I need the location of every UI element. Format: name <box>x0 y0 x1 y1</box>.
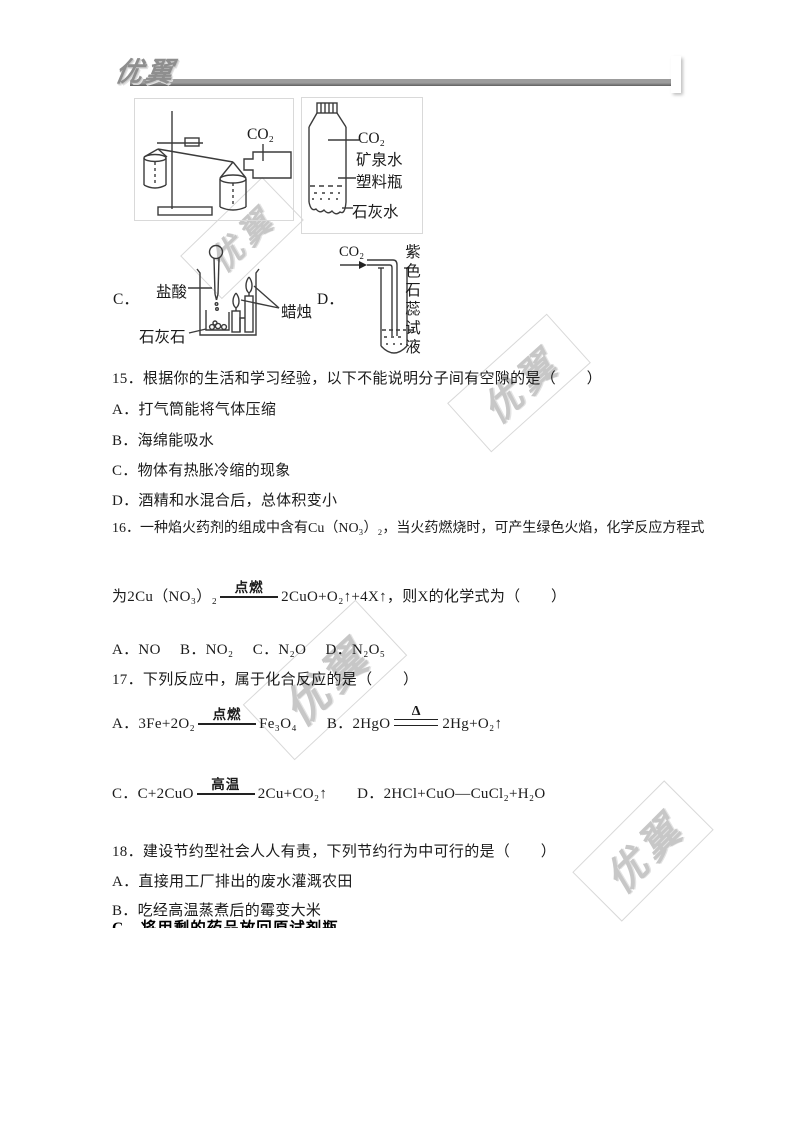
option-d-marker: D． <box>317 287 344 309</box>
watermark-stamp: 优翼 <box>572 780 713 921</box>
q17-options-ab: A．3Fe+2O₂点燃Fe₃O₄B．2HgOΔ2Hg+O₂↑ <box>112 712 502 733</box>
balance-apparatus-icon <box>135 99 293 220</box>
brand-logo: 优翼 <box>113 50 180 89</box>
q17-option-b-left: B．2HgO <box>327 716 390 732</box>
q17-option-d: D．2HCl+CuO—CuCl₂+H₂O <box>357 786 545 802</box>
q15-option-d: D．酒精和水混合后，总体积变小 <box>112 489 337 510</box>
option-c-marker: C． <box>113 287 139 309</box>
diagram-d-co2-label: CO₂ <box>339 244 364 261</box>
q17-option-a-right: Fe₃O₄ <box>259 716 297 732</box>
q17-option-b-right: 2Hg+O₂↑ <box>442 716 502 732</box>
q16-stem: 16．一种焰火药剂的组成中含有Cu（NO₃）₂，当火药燃烧时，可产生绿色火焰，化… <box>112 517 704 537</box>
q17-option-a-left: A．3Fe+2O₂ <box>112 716 195 732</box>
diagram-c-candles-label: 蜡烛 <box>281 300 312 322</box>
diagram-d-litmus-label: 紫色石蕊试液 <box>404 243 422 357</box>
q18-option-c-clipped: C．将用剩的药品放回原试剂瓶 <box>112 916 339 928</box>
diagram-b-co2-label: CO₂ <box>358 130 385 148</box>
q15-option-a: A．打气筒能将气体压缩 <box>112 398 276 419</box>
q18-stem: 18．建设节约型社会人人有责，下列节约行为中可行的是（ ） <box>112 840 556 861</box>
diagram-c-limestone-label: 石灰石 <box>139 325 186 347</box>
diagram-b-bottle-label-line2: 塑料瓶 <box>356 170 403 192</box>
q18-option-a: A．直接用工厂排出的废水灌溉农田 <box>112 870 353 891</box>
q16-equation-left: 为2Cu（NO₃）₂ <box>112 589 217 605</box>
reaction-condition-ignite: 点燃 <box>220 596 278 598</box>
diagram-b-bottle-label-line1: 矿泉水 <box>356 148 403 170</box>
page-edge-artifact <box>671 56 681 93</box>
q15-option-b: B．海绵能吸水 <box>112 429 214 450</box>
q16-options-line: A．NO B．NO₂ C．N₂O D．N₂O₅ <box>112 638 385 659</box>
diagram-a-co2-label: CO₂ <box>247 126 274 144</box>
q17-options-cd: C．C+2CuO高温2Cu+CO₂↑D．2HCl+CuO—CuCl₂+H₂O <box>112 782 546 803</box>
q16-equation-right: 2CuO+O₂↑+4X↑，则X的化学式为（ ） <box>281 589 566 605</box>
balance-apparatus-diagram <box>134 98 294 221</box>
q17-option-c-right: 2Cu+CO₂↑ <box>258 786 327 802</box>
reaction-condition-high-temp: 高温 <box>197 793 255 795</box>
q17-option-c-left: C．C+2CuO <box>112 786 194 802</box>
q17-stem: 17．下列反应中，属于化合反应的是（ ） <box>112 668 418 689</box>
reaction-condition-heat-delta: Δ <box>394 719 438 726</box>
diagram-c-acid-label: 盐酸 <box>156 280 187 302</box>
q15-option-c: C．物体有热胀冷缩的现象 <box>112 459 291 480</box>
q16-equation-line: 为2Cu（NO₃）₂点燃2CuO+O₂↑+4X↑，则X的化学式为（ ） <box>112 585 566 606</box>
q15-stem: 15．根据你的生活和学习经验，以下不能说明分子间有空隙的是（ ） <box>112 367 602 388</box>
reaction-condition-ignite: 点燃 <box>198 723 256 725</box>
exam-page: 优翼 优翼 优翼 优翼 优翼 CO₂ <box>0 0 800 1132</box>
diagram-b-limewater-label: 石灰水 <box>352 200 399 222</box>
header-rule <box>130 79 675 86</box>
